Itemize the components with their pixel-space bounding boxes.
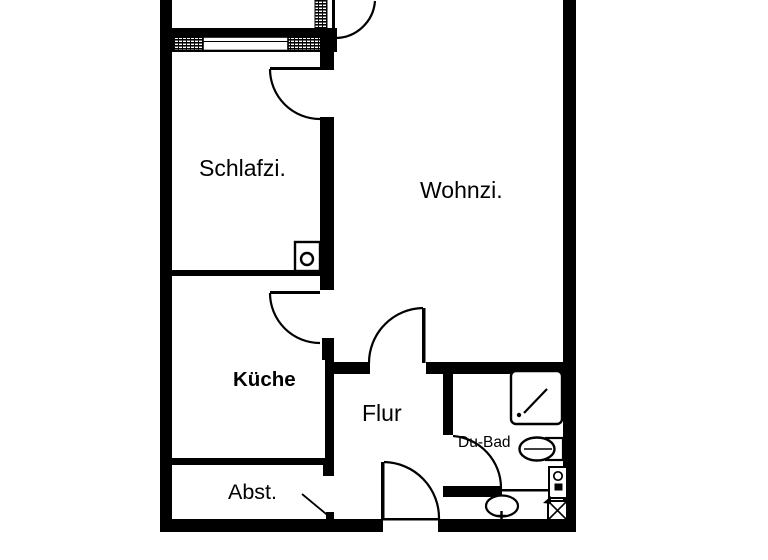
- kueche-door-leaf: [270, 291, 320, 294]
- dubad-counter-line: [502, 489, 550, 492]
- outer-wall-left: [160, 0, 172, 532]
- top-door-leaf-hatched: [315, 0, 327, 28]
- chimney-icon: [295, 242, 320, 271]
- room-label-kueche: Küche: [233, 368, 296, 391]
- room-label-wohnzimmer: Wohnzi.: [420, 177, 503, 203]
- room-label-schlafzimmer: Schlafzi.: [199, 155, 286, 181]
- room-label-dubad: Du-Bad: [458, 434, 511, 451]
- schlafzi-door-leaf: [270, 67, 320, 70]
- floor-plan-drawing: Schlafzi. Wohnzi. Küche Flur Du-Bad Abst…: [0, 0, 768, 560]
- wall-hatch-left: [174, 38, 203, 50]
- kueche-door-swing-arc: [270, 293, 320, 343]
- wall-dubad-left: [443, 374, 453, 435]
- room-label-abstellraum: Abst.: [228, 480, 277, 504]
- shower-icon: [511, 371, 562, 424]
- abst-door-leaf-diagonal: [302, 494, 331, 518]
- toilet-icon: [520, 438, 564, 461]
- washbasin-icon: [486, 496, 518, 521]
- bedroom-window: [203, 37, 288, 51]
- outer-wall-bottom-left: [160, 519, 383, 532]
- wall-wohnzi-flur-left: [333, 362, 370, 374]
- washing-machine-icon: [549, 467, 567, 498]
- entrance-door-swing-arc: [384, 462, 439, 519]
- wohnzi-door-leaf: [422, 308, 426, 363]
- top-door-swing-arc: [336, 1, 375, 38]
- room-label-flur: Flur: [362, 400, 402, 426]
- wall-kueche-flur-stub: [322, 338, 334, 360]
- wall-dubad-bottom-bar: [443, 486, 502, 497]
- outer-wall-right: [563, 0, 576, 532]
- wall-schlafzi-wohnzi-upper: [320, 28, 334, 70]
- wohnzi-door-swing-arc: [369, 308, 423, 363]
- wall-abst-flur-block: [323, 458, 334, 476]
- top-wall-edge-line: [332, 0, 335, 32]
- schlafzi-door-swing-arc: [270, 69, 320, 119]
- entrance-door-leaf: [381, 462, 385, 519]
- wall-kueche-flur: [325, 358, 334, 458]
- entrance-threshold-line: [383, 518, 439, 521]
- wall-kueche-abst: [172, 458, 323, 465]
- floor-plan-page: Schlafzi. Wohnzi. Küche Flur Du-Bad Abst…: [0, 0, 768, 560]
- wall-schlafzi-wohnzi-lower: [320, 117, 334, 290]
